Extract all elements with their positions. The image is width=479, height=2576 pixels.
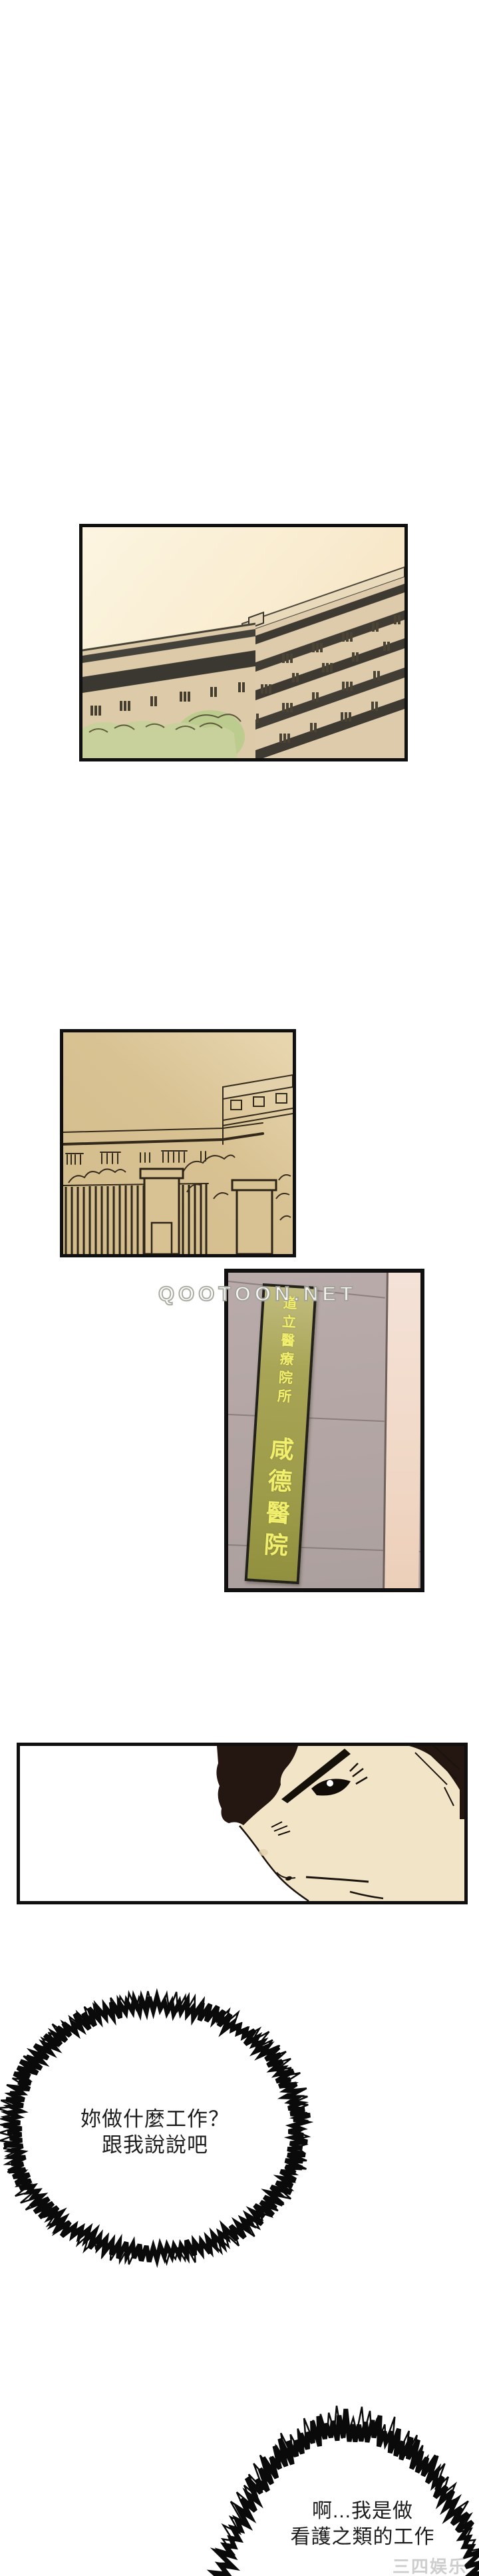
sign-hospital-name: 咸德醫院 bbox=[255, 1435, 298, 1565]
speech-bubble-answer bbox=[203, 2404, 479, 2576]
panel-hospital-gate-sketch bbox=[60, 1029, 296, 1257]
bubble-answer-text: 啊...我是做 看護之類的工作 bbox=[259, 2498, 466, 2550]
gate-sketch-illustration bbox=[63, 1032, 293, 1254]
bubble-question-line-2: 跟我說說吧 bbox=[49, 2132, 261, 2158]
hospital-building-illustration bbox=[82, 527, 404, 758]
bubble-question-line-1: 妳做什麼工作？ bbox=[49, 2106, 261, 2132]
bubble-question-text: 妳做什麼工作？ 跟我說說吧 bbox=[49, 2106, 261, 2158]
hospital-sign-plaque: 道立醫療院所 咸德醫院 bbox=[245, 1283, 317, 1584]
face-illustration bbox=[20, 1746, 464, 1901]
bubble-answer-line-2: 看護之類的工作 bbox=[259, 2524, 466, 2550]
bubble-answer-line-1: 啊...我是做 bbox=[259, 2498, 466, 2524]
tiled-wall: 道立醫療院所 咸德醫院 bbox=[228, 1273, 420, 1588]
panel-man-face bbox=[17, 1743, 468, 1904]
comic-page: 道立醫療院所 咸德醫院 QOOTOON.NET bbox=[0, 0, 479, 2576]
watermark-site: QOOTOON.NET bbox=[158, 1282, 357, 1306]
panel-hospital-sign: 道立醫療院所 咸德醫院 bbox=[224, 1269, 424, 1592]
wall-light-strip bbox=[383, 1273, 422, 1588]
panel-hospital-exterior bbox=[79, 524, 408, 761]
watermark-publisher: 三四娱乐 bbox=[393, 2553, 467, 2576]
sign-institution-type: 道立醫療院所 bbox=[273, 1295, 299, 1408]
gate-pillar-left bbox=[140, 1169, 183, 1254]
gate-pillar-right bbox=[232, 1180, 276, 1254]
